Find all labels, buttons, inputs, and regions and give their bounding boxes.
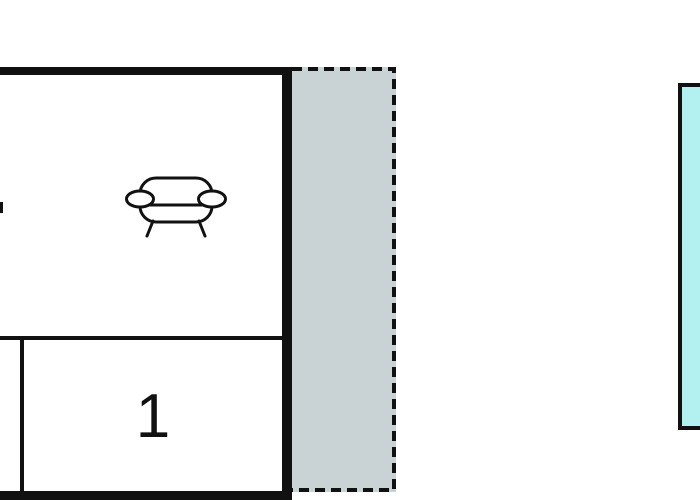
pool-area (680, 85, 700, 428)
wall-divider-horizontal (0, 336, 282, 340)
wall-top (0, 67, 292, 75)
floor-plan-canvas: 1 (0, 0, 700, 500)
wall-right (282, 67, 292, 499)
wall-divider-vertical (20, 336, 24, 491)
wall-fragment-left-edge (0, 202, 3, 213)
terrace-area (292, 67, 396, 492)
room-1-label: 1 (136, 382, 170, 451)
floor-plan: 1 (0, 0, 700, 500)
wall-bottom (0, 491, 292, 500)
sofa-icon (127, 178, 226, 236)
